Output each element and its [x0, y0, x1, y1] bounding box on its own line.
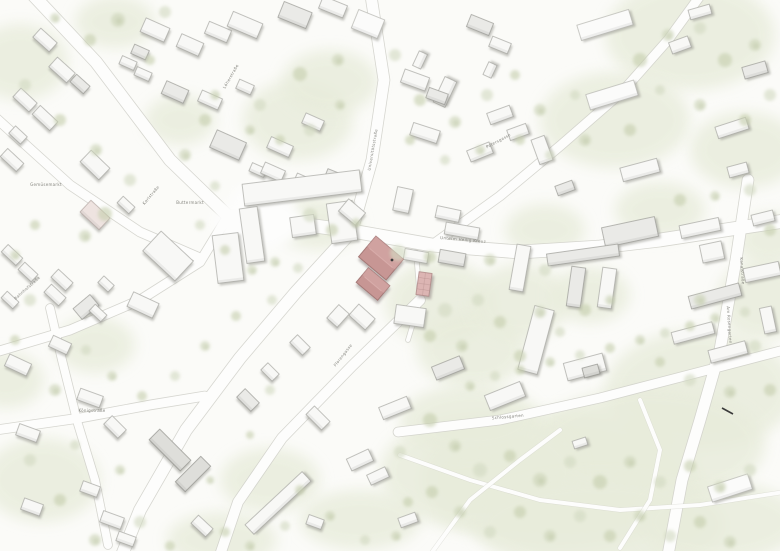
tree-canopy-core	[458, 510, 463, 515]
tree-canopy	[655, 357, 665, 367]
tree-canopy-core	[460, 344, 465, 349]
tree-canopy	[764, 89, 776, 101]
tree-canopy-core	[111, 375, 116, 380]
building	[212, 233, 244, 284]
tree-canopy	[303, 208, 317, 222]
tree-canopy	[739, 114, 751, 126]
tree-canopy-core	[355, 222, 360, 227]
building-footprint	[212, 233, 244, 284]
tree-canopy	[515, 365, 525, 375]
tree-canopy-core	[274, 261, 279, 266]
tree-canopy	[764, 384, 776, 396]
tree-canopy	[764, 224, 776, 236]
tree-canopy-core	[538, 108, 543, 113]
tree-canopy	[145, 55, 155, 65]
tree-canopy	[30, 220, 40, 230]
tree-canopy-core	[698, 103, 703, 108]
tree-canopy	[504, 450, 516, 462]
tree-canopy	[137, 391, 147, 401]
tree-canopy	[231, 311, 241, 321]
tree-canopy-core	[395, 535, 400, 540]
tree-canopy	[54, 494, 66, 506]
tree-canopy	[684, 460, 696, 472]
tree-canopy	[473, 463, 487, 477]
tree-canopy	[510, 70, 520, 80]
tree-canopy	[744, 184, 756, 196]
tree-canopy	[424, 251, 436, 263]
tree-canopy-core	[714, 317, 719, 322]
tree-canopy	[514, 506, 526, 518]
tree-canopy-core	[54, 17, 59, 22]
tree-canopy	[98, 207, 112, 221]
tree-canopy	[280, 521, 290, 531]
tree-canopy	[134, 516, 146, 528]
site-plan-drawing: GemüsemarktKarlstraßeButtermarktBahnhofs…	[0, 0, 780, 551]
tree-canopy	[54, 114, 66, 126]
tree-canopy-core	[119, 469, 124, 474]
tree-canopy	[426, 486, 438, 498]
tree-canopy	[170, 371, 180, 381]
tree-canopy	[685, 321, 695, 331]
highlight-pavilion	[416, 272, 432, 297]
tree-canopy	[633, 53, 647, 67]
tree-canopy	[304, 124, 316, 136]
tree-canopy-core	[549, 361, 554, 366]
tree-canopy-core	[753, 43, 758, 48]
tree-canopy-core	[249, 545, 254, 550]
vegetation-wash	[550, 267, 630, 323]
tree-canopy	[24, 454, 36, 466]
tree-canopy-core	[628, 460, 633, 465]
site-plan-stage: GemüsemarktKarlstraßeButtermarktBahnhofs…	[0, 0, 780, 551]
tree-canopy-core	[214, 94, 219, 99]
vegetation-wash	[282, 50, 378, 114]
tree-canopy-core	[718, 485, 723, 490]
tree-canopy	[438, 303, 452, 317]
tree-canopy-core	[249, 129, 254, 134]
building	[394, 305, 426, 328]
tree-canopy	[423, 413, 437, 427]
tree-canopy	[210, 181, 220, 191]
tree-canopy	[195, 220, 205, 230]
tree-canopy-core	[488, 258, 493, 263]
tree-canopy-core	[639, 339, 644, 344]
tree-canopy	[664, 530, 676, 542]
tree-canopy	[545, 150, 555, 160]
tree-canopy	[749, 340, 761, 352]
tree-canopy	[655, 85, 665, 95]
tree-canopy	[295, 485, 305, 495]
tree-canopy	[394, 446, 406, 458]
tree-canopy-core	[251, 269, 256, 274]
tree-canopy	[389, 49, 401, 61]
tree-canopy	[694, 22, 706, 34]
tree-canopy-core	[204, 345, 209, 350]
street-label: Buttermarkt	[176, 200, 204, 205]
tree-canopy	[246, 431, 254, 439]
tree-canopy	[570, 90, 580, 100]
tree-canopy	[624, 124, 636, 136]
tree-canopy	[424, 330, 436, 342]
tree-canopy-core	[93, 538, 98, 543]
tree-canopy	[81, 345, 91, 355]
tree-canopy-core	[548, 534, 553, 539]
tree-canopy	[494, 316, 506, 328]
tree-canopy	[10, 335, 20, 345]
tree-canopy	[555, 327, 565, 337]
tree-canopy-core	[728, 540, 733, 545]
tree-canopy	[472, 294, 484, 306]
tree-canopy	[684, 374, 696, 386]
tree-canopy-core	[83, 234, 88, 239]
tree-canopy	[564, 456, 576, 468]
tree-canopy	[124, 174, 136, 186]
tree-canopy-core	[714, 195, 719, 200]
tree-canopy-core	[479, 149, 484, 154]
tree-canopy-core	[116, 18, 122, 24]
tree-canopy	[694, 516, 706, 528]
tree-canopy-core	[538, 310, 543, 315]
tree-canopy-core	[94, 148, 99, 153]
tree-canopy	[165, 541, 175, 551]
tree-canopy	[159, 6, 171, 18]
tree-canopy	[275, 135, 285, 145]
tree-canopy	[220, 527, 230, 537]
tree-canopy-core	[469, 385, 474, 390]
tree-canopy	[414, 94, 426, 106]
tree-canopy	[740, 307, 750, 317]
tree-canopy	[265, 385, 275, 395]
tree-canopy	[575, 350, 585, 360]
tree-canopy	[605, 343, 615, 353]
tree-canopy	[267, 295, 277, 305]
tree-canopy-core	[538, 478, 544, 484]
tree-canopy	[199, 114, 211, 126]
tree-canopy	[490, 371, 500, 381]
tree-canopy-core	[336, 58, 341, 63]
tree-canopy	[440, 155, 450, 165]
tree-canopy-core	[183, 153, 188, 158]
street-label: Gemüsemarkt	[30, 182, 62, 187]
tree-canopy-core	[638, 514, 643, 519]
tree-canopy-core	[329, 515, 334, 520]
tree-canopy	[326, 224, 338, 236]
tree-canopy	[484, 526, 496, 538]
tree-canopy	[70, 440, 80, 450]
tree-canopy-core	[14, 254, 19, 259]
tree-canopy	[604, 530, 616, 542]
tree-canopy	[744, 464, 756, 476]
tree-canopy	[579, 304, 591, 316]
tree-canopy	[405, 135, 415, 145]
street-label: Königstraße	[78, 408, 105, 413]
tree-canopy	[19, 79, 31, 91]
tree-canopy	[220, 245, 230, 255]
tree-canopy-core	[209, 479, 213, 483]
tree-canopy	[360, 535, 370, 545]
tree-canopy	[718, 53, 732, 67]
tree-canopy-core	[53, 388, 58, 393]
tree-canopy-core	[453, 444, 458, 449]
tree-canopy	[660, 328, 670, 338]
tree-canopy-core	[666, 33, 671, 38]
tree-canopy-core	[609, 299, 614, 304]
tree-canopy	[515, 135, 525, 145]
tree-canopy-core	[728, 390, 733, 395]
tree-canopy	[293, 67, 307, 81]
tree-canopy	[654, 476, 666, 488]
tree-canopy	[403, 497, 413, 507]
tree-canopy	[390, 245, 406, 261]
tree-canopy	[24, 294, 36, 306]
tree-canopy-core	[698, 298, 703, 303]
tree-canopy	[539, 264, 551, 276]
tree-canopy-core	[583, 138, 588, 143]
entrance-dot	[391, 259, 394, 262]
tree-canopy-core	[453, 120, 458, 125]
tree-canopy	[481, 89, 493, 101]
tree-canopy	[293, 263, 303, 273]
tree-canopy	[574, 510, 586, 522]
tree-canopy-core	[339, 104, 344, 109]
tree-canopy	[593, 475, 607, 489]
tree-canopy	[254, 99, 266, 111]
tree-canopy	[514, 350, 526, 362]
tree-canopy	[84, 34, 96, 46]
tree-canopy	[674, 194, 686, 206]
